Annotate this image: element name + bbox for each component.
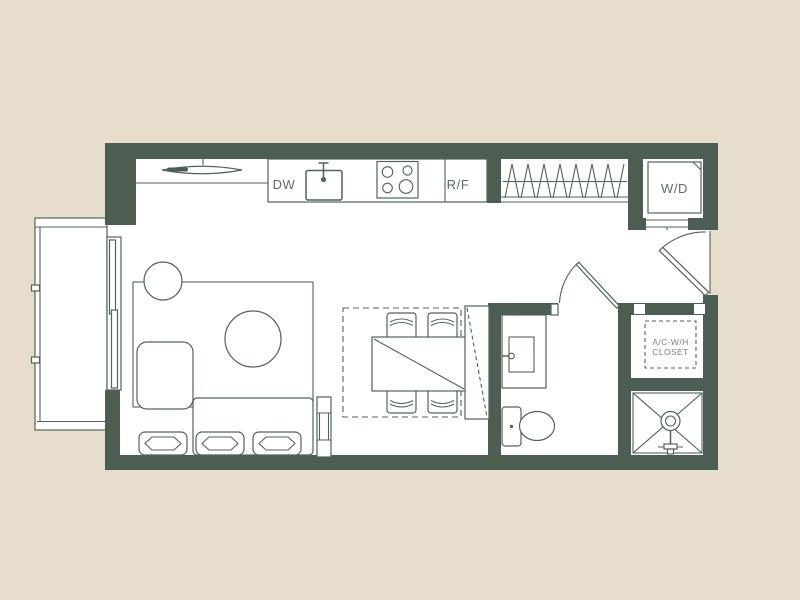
washer-dryer-label: W/D [661,181,688,196]
door-jamb-cap [551,304,558,315]
sliding-door-pane [112,310,118,388]
wall-bath-top [488,303,558,315]
cushion-outline [253,432,301,455]
sliding-panel-body [465,306,489,419]
sofa-cushion [139,432,187,455]
balcony [32,218,108,430]
utility-closet-label-line1: A/C-W/H [652,337,688,347]
sofa-cushion [253,432,301,455]
utility-closet-label-line2: CLOSET [652,347,688,357]
sink-drain [321,177,326,182]
shower-valve-body [664,444,677,449]
railing-post [32,357,40,363]
railing-post [32,285,40,291]
vanity [502,315,546,388]
wall-right-lower [703,295,718,455]
console-side-table [317,397,331,457]
sofa-cushion [196,432,244,455]
entry-opening-exterior [710,230,718,295]
wall-below-wd-right [688,218,718,230]
door-jamb-notch [634,304,645,314]
shower-valve-handle [668,449,674,454]
wall-wd-closet-left [628,159,643,218]
wall-below-wd-left [628,218,646,230]
fridge-label: R/F [447,177,470,192]
toilet-bowl [520,412,555,441]
wall-bath-west [488,315,501,455]
balcony-sliding-door [107,237,121,390]
wall-top [105,143,718,159]
wall-bath-east [618,303,631,455]
floor-plan-page: DW R/F W/D [0,0,800,600]
wall-left-lower [105,390,120,455]
wall-utility-bottom [631,378,703,391]
cushion-outline [139,432,187,455]
wall-bottom [105,455,718,470]
door-jamb-notch [694,304,705,314]
toilet-flush-button [510,425,513,428]
wall-left-upper [105,159,136,225]
cushion-outline [196,432,244,455]
wall-stub-fridge-closet [487,159,501,203]
balcony-floor [35,218,107,430]
sofa-chaise [137,342,193,409]
stove [377,162,418,199]
floor-plan-drawing: DW R/F W/D [0,0,800,600]
stove-top [377,162,418,199]
light-fixture-bulb [167,168,188,172]
side-table-round [144,262,182,300]
shower-drain-outer [661,412,680,431]
coffee-table [225,311,281,367]
sliding-panel [465,306,489,419]
sliding-door-pane [110,240,116,314]
dishwasher-label: DW [273,177,296,192]
